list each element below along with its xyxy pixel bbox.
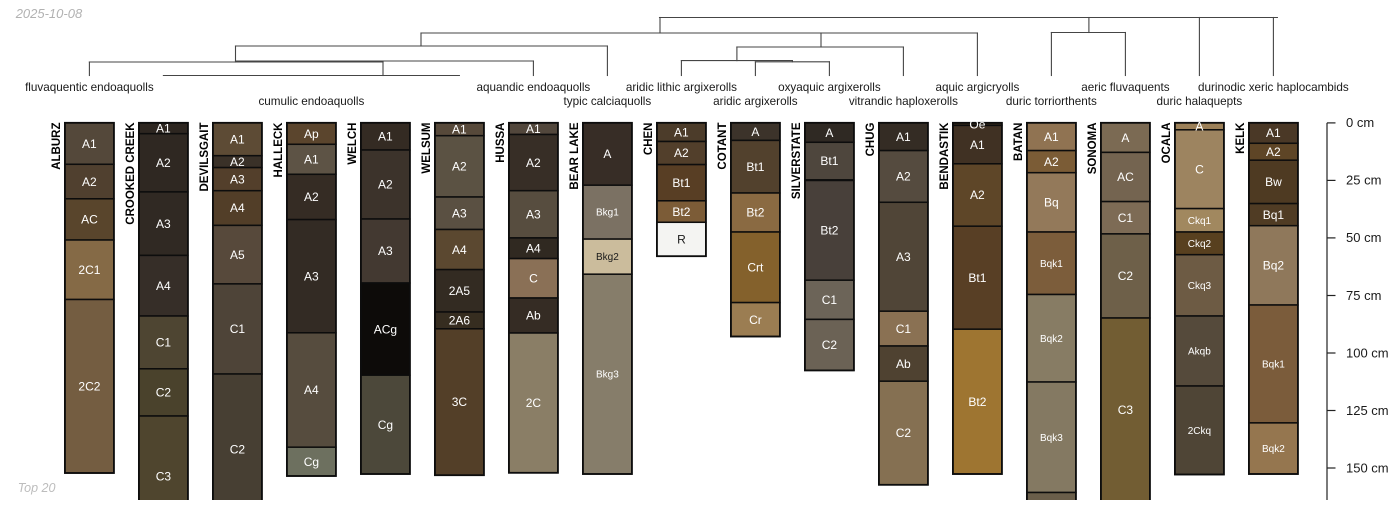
svg-text:Bqk2: Bqk2: [1040, 334, 1063, 345]
svg-text:A2: A2: [156, 156, 171, 170]
svg-text:Bqk1: Bqk1: [1040, 259, 1063, 270]
svg-text:C3: C3: [1118, 403, 1134, 417]
svg-text:2A6: 2A6: [449, 314, 471, 328]
svg-text:A2: A2: [452, 160, 467, 174]
svg-text:Cg: Cg: [304, 455, 319, 469]
svg-text:cumulic endoaquolls: cumulic endoaquolls: [258, 95, 364, 108]
svg-text:A2: A2: [378, 178, 393, 192]
svg-text:A1: A1: [526, 122, 541, 136]
svg-text:A3: A3: [304, 269, 319, 283]
svg-text:Bqk1: Bqk1: [1262, 359, 1285, 370]
svg-text:A2: A2: [526, 156, 541, 170]
svg-text:Bqk3: Bqk3: [1040, 433, 1063, 444]
svg-text:aeric fluvaquents: aeric fluvaquents: [1081, 81, 1170, 94]
svg-text:Bkg2: Bkg2: [596, 252, 619, 263]
svg-text:SILVERSTATE: SILVERSTATE: [791, 122, 803, 199]
svg-text:Ckq2: Ckq2: [1188, 239, 1212, 250]
svg-text:A1: A1: [230, 132, 245, 146]
svg-text:Bt1: Bt1: [746, 160, 764, 174]
svg-text:oxyaquic argixerolls: oxyaquic argixerolls: [778, 81, 881, 94]
svg-text:A4: A4: [156, 279, 171, 293]
svg-text:A1: A1: [156, 121, 171, 135]
svg-text:WELSUM: WELSUM: [421, 123, 433, 174]
svg-text:Akqb: Akqb: [1188, 347, 1211, 358]
svg-text:typic calciaquolls: typic calciaquolls: [564, 95, 652, 108]
svg-text:AC: AC: [81, 213, 98, 227]
svg-text:A: A: [751, 125, 759, 139]
svg-text:A2: A2: [970, 188, 985, 202]
svg-text:aquic argicryolls: aquic argicryolls: [936, 81, 1020, 94]
svg-text:COTANT: COTANT: [717, 123, 729, 170]
svg-text:Top 20: Top 20: [18, 481, 56, 495]
svg-text:Bkg1: Bkg1: [596, 208, 619, 219]
svg-text:Bt2: Bt2: [820, 224, 838, 238]
svg-text:durinodic xeric haplocambids: durinodic xeric haplocambids: [1198, 81, 1349, 94]
svg-text:A3: A3: [896, 250, 911, 264]
svg-text:aridic argixerolls: aridic argixerolls: [713, 95, 798, 108]
svg-text:A1: A1: [896, 130, 911, 144]
svg-text:CHEN: CHEN: [643, 123, 655, 156]
svg-text:DEVILSGAIT: DEVILSGAIT: [199, 123, 211, 192]
svg-text:HALLECK: HALLECK: [273, 122, 285, 178]
svg-text:Bw: Bw: [1265, 175, 1282, 189]
svg-text:SONOMA: SONOMA: [1087, 123, 1099, 175]
svg-text:A2: A2: [1266, 145, 1281, 159]
svg-text:A1: A1: [1044, 130, 1059, 144]
svg-text:A1: A1: [304, 153, 319, 167]
svg-text:C2: C2: [1118, 269, 1134, 283]
svg-text:2Ckq: 2Ckq: [1188, 426, 1211, 437]
svg-text:fluvaquentic endoaquolls: fluvaquentic endoaquolls: [25, 81, 154, 94]
svg-text:duric torriorthents: duric torriorthents: [1006, 95, 1097, 108]
svg-text:A3: A3: [378, 244, 393, 258]
svg-text:C1: C1: [156, 336, 172, 350]
svg-text:Bt2: Bt2: [672, 205, 690, 219]
svg-text:75 cm: 75 cm: [1346, 288, 1381, 303]
svg-text:A1: A1: [970, 138, 985, 152]
svg-text:A2: A2: [674, 146, 689, 160]
svg-text:Bt2: Bt2: [746, 206, 764, 220]
svg-text:A: A: [1121, 131, 1129, 145]
svg-text:A: A: [603, 147, 611, 161]
svg-text:ALBURZ: ALBURZ: [51, 123, 63, 170]
svg-text:C1: C1: [230, 322, 246, 336]
svg-text:A3: A3: [230, 172, 245, 186]
svg-text:A5: A5: [230, 248, 245, 262]
svg-text:3C: 3C: [452, 395, 468, 409]
svg-text:A: A: [825, 126, 833, 140]
svg-text:Crt: Crt: [747, 261, 764, 275]
svg-text:Cg: Cg: [378, 418, 393, 432]
svg-text:CROOKED CREEK: CROOKED CREEK: [125, 122, 137, 225]
svg-text:0 cm: 0 cm: [1346, 115, 1374, 130]
svg-text:Ckq3: Ckq3: [1188, 281, 1212, 292]
svg-text:Bt1: Bt1: [968, 271, 986, 285]
svg-text:A2: A2: [1044, 155, 1059, 169]
svg-text:KELK: KELK: [1235, 122, 1247, 154]
svg-text:duric halaquepts: duric halaquepts: [1157, 95, 1243, 108]
svg-text:Bt1: Bt1: [820, 154, 838, 168]
svg-text:A2: A2: [82, 175, 97, 189]
svg-text:Cr: Cr: [749, 313, 762, 327]
svg-text:Bkg3: Bkg3: [596, 370, 619, 381]
svg-text:A1: A1: [674, 125, 689, 139]
svg-text:C2: C2: [156, 386, 172, 400]
svg-text:Bq: Bq: [1044, 196, 1059, 210]
svg-text:Bqk2: Bqk2: [1262, 444, 1285, 455]
svg-text:aquandic endoaquolls: aquandic endoaquolls: [477, 81, 591, 94]
svg-text:A2: A2: [896, 170, 911, 184]
svg-text:A3: A3: [156, 217, 171, 231]
svg-text:Ckq1: Ckq1: [1188, 216, 1212, 227]
svg-text:C2: C2: [230, 443, 246, 457]
svg-text:A4: A4: [230, 201, 245, 215]
svg-text:A4: A4: [452, 243, 467, 257]
svg-text:25 cm: 25 cm: [1346, 173, 1381, 188]
svg-text:C1: C1: [822, 293, 838, 307]
svg-text:A2: A2: [304, 190, 319, 204]
svg-text:aridic lithic argixerolls: aridic lithic argixerolls: [626, 81, 737, 94]
svg-text:150 cm: 150 cm: [1346, 460, 1389, 475]
svg-text:A3: A3: [452, 206, 467, 220]
svg-text:BEAR LAKE: BEAR LAKE: [569, 122, 581, 189]
svg-text:2025-10-08: 2025-10-08: [15, 6, 83, 21]
svg-text:OCALA: OCALA: [1161, 123, 1173, 164]
svg-text:2C1: 2C1: [78, 263, 100, 277]
svg-text:Ab: Ab: [896, 357, 911, 371]
svg-text:2C2: 2C2: [78, 379, 100, 393]
svg-text:A1: A1: [452, 122, 467, 136]
svg-text:50 cm: 50 cm: [1346, 230, 1381, 245]
svg-text:Ap: Ap: [304, 127, 319, 141]
svg-text:HUSSA: HUSSA: [495, 123, 507, 163]
svg-text:BATAN: BATAN: [1013, 123, 1025, 162]
svg-text:A1: A1: [1266, 126, 1281, 140]
svg-text:A3: A3: [526, 208, 541, 222]
svg-text:C2: C2: [822, 338, 838, 352]
svg-text:C3: C3: [156, 470, 172, 484]
svg-text:Ab: Ab: [526, 309, 541, 323]
svg-text:A: A: [1195, 120, 1203, 134]
svg-text:C2: C2: [896, 426, 912, 440]
svg-text:Bt1: Bt1: [672, 176, 690, 190]
svg-text:A1: A1: [82, 137, 97, 151]
svg-text:C1: C1: [896, 322, 912, 336]
svg-text:A1: A1: [378, 130, 393, 144]
svg-text:Bq2: Bq2: [1263, 259, 1285, 273]
svg-text:2C: 2C: [526, 396, 542, 410]
svg-text:100 cm: 100 cm: [1346, 345, 1389, 360]
svg-text:A4: A4: [304, 383, 319, 397]
svg-text:2A5: 2A5: [449, 284, 471, 298]
svg-text:vitrandic haploxerolls: vitrandic haploxerolls: [849, 95, 958, 108]
svg-text:Oe: Oe: [969, 117, 985, 131]
svg-text:BENDASTIK: BENDASTIK: [939, 122, 951, 190]
svg-text:C1: C1: [1118, 211, 1134, 225]
svg-text:Bt2: Bt2: [968, 395, 986, 409]
svg-text:Bq1: Bq1: [1263, 208, 1285, 222]
svg-text:WELCH: WELCH: [347, 123, 359, 165]
svg-text:C: C: [529, 272, 538, 286]
svg-text:125 cm: 125 cm: [1346, 403, 1389, 418]
svg-text:C: C: [1195, 162, 1204, 176]
svg-text:CHUG: CHUG: [865, 122, 877, 156]
svg-text:A2: A2: [230, 155, 245, 169]
svg-text:ACg: ACg: [374, 322, 397, 336]
svg-text:AC: AC: [1117, 170, 1134, 184]
svg-text:R: R: [677, 232, 686, 246]
svg-text:A4: A4: [526, 241, 541, 255]
